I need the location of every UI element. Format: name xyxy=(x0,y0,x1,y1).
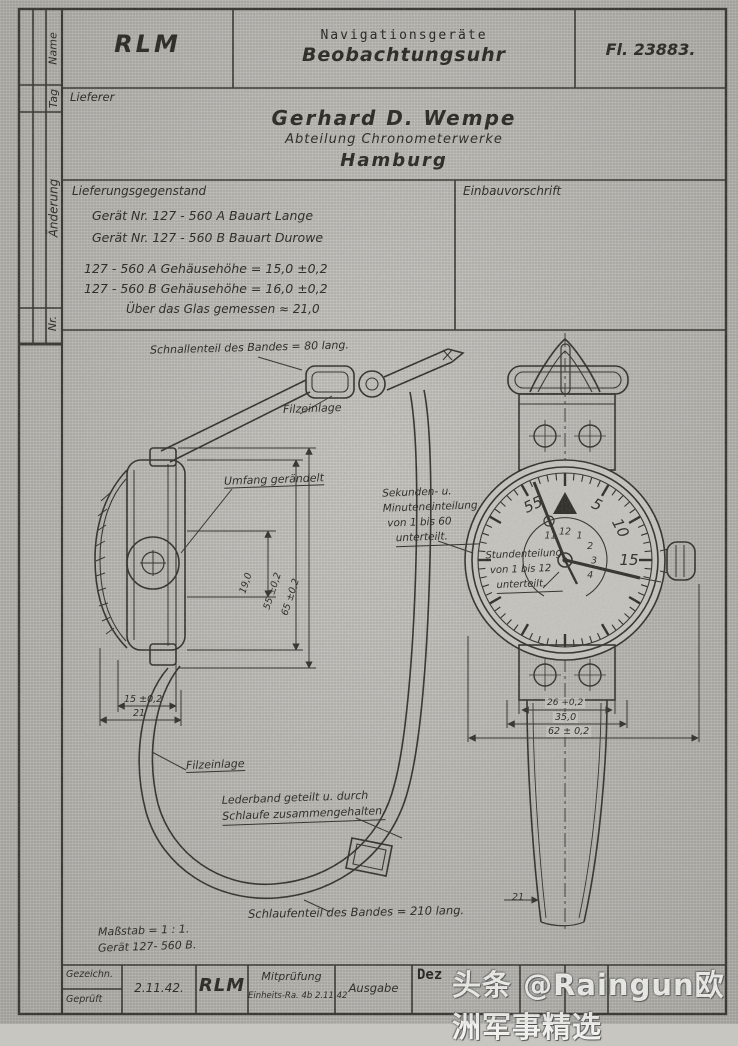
margin-label-aenderung: Änderung xyxy=(46,179,60,238)
dim-inner-height: 19,0 xyxy=(238,571,255,595)
delivery-line: 127 - 560 A Gehäusehöhe = 15,0 ±0,2 xyxy=(84,261,328,276)
delivery-line: Gerät Nr. 127 - 560 A Bauart Lange xyxy=(92,208,313,223)
titleblock-date: 2.11.42. xyxy=(122,981,196,995)
header-doc-number: Fl. 23883. xyxy=(575,40,726,59)
dim-case-diameter: 55 ±0,2 xyxy=(262,571,284,611)
titleblock-issue-label: Ausgabe xyxy=(335,981,412,995)
annotation-device-note: Gerät 127- 560 B. xyxy=(98,938,197,954)
delivery-label: Lieferungsgegenstand xyxy=(72,184,206,198)
titleblock-cocheck-detail: Einheits-Ra. 4b 2.11.42 xyxy=(248,991,335,1001)
supplier-dept: Abteilung Chronometerwerke xyxy=(62,132,726,147)
dim-strap-end: 21 xyxy=(512,892,524,903)
annotation-loop-strap: Schlaufenteil des Bandes = 210 lang. xyxy=(248,903,464,921)
titleblock-drawn-label: Gezeichn. xyxy=(66,969,113,980)
titleblock-org: RLM xyxy=(196,975,248,996)
dim-lug-width: 35,0 xyxy=(553,712,578,723)
annotation-leather-band: Lederband geteilt u. durch Schlaufe zusa… xyxy=(221,787,385,826)
annotation-seconds-scale: Sekunden- u. Minuteneinteilung von 1 bis… xyxy=(382,483,479,547)
supplier-name: Gerhard D. Wempe xyxy=(62,106,726,130)
titleblock-cocheck: Mitprüfung xyxy=(248,970,335,983)
annotation-knurl: Umfang gerändelt xyxy=(224,471,324,488)
margin-label-name: Name xyxy=(47,32,60,64)
delivery-line: 127 - 560 B Gehäusehöhe = 16,0 ±0,2 xyxy=(84,281,328,296)
header-title: Beobachtungsuhr xyxy=(233,44,575,66)
delivery-line: Gerät Nr. 127 - 560 B Bauart Durowe xyxy=(92,230,323,245)
annotation-scale-note: Maßstab = 1 : 1. xyxy=(98,922,190,938)
dim-overall-height: 65 ±0,2 xyxy=(280,577,302,617)
blueprint-sheet: { "header": {"org": "RLM", "category": "… xyxy=(0,0,738,1024)
supplier-city: Hamburg xyxy=(62,150,726,171)
watermark: 头条 @Raingun欧洲军事精选 xyxy=(452,962,738,1046)
titleblock-checked-label: Geprüft xyxy=(66,994,102,1005)
dim-case-height: 15 ±0,2 xyxy=(124,694,162,705)
margin-label-nr: Nr. xyxy=(46,316,59,331)
header-category: Navigationsgeräte xyxy=(233,28,575,43)
annotation-buckle-strap: Schnallenteil des Bandes = 80 lang. xyxy=(150,338,349,356)
header-org: RLM xyxy=(62,30,233,58)
dim-case-width: 62 ± 0,2 xyxy=(546,726,591,737)
titleblock-dept: Dez xyxy=(417,967,442,983)
install-label: Einbauvorschrift xyxy=(463,184,561,198)
margin-label-tag: Tag xyxy=(47,89,60,108)
dim-strap-width: 26 +0,2 xyxy=(545,698,585,708)
annotation-felt-top: Filzeinlage xyxy=(283,401,342,416)
annotation-felt-bottom: Filzeinlage xyxy=(186,757,245,773)
annotation-hours-scale: Stundenteilung von 1 bis 12 unterteilt. xyxy=(485,546,563,595)
supplier-label: Lieferer xyxy=(70,90,114,104)
text-layer: Name Tag Änderung Nr. RLM Navigationsger… xyxy=(0,0,738,1024)
delivery-line: Über das Glas gemessen ≈ 21,0 xyxy=(126,302,320,316)
dim-glass-height: 21 xyxy=(133,708,145,719)
